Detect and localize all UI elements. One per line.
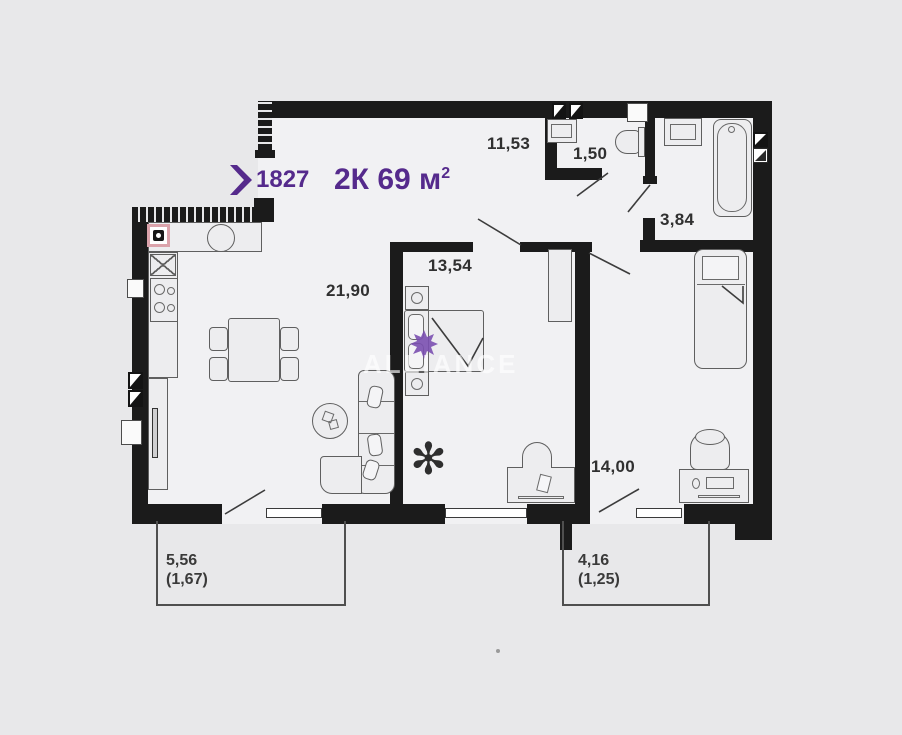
balcony-left-label: 5,56 (1,67) <box>166 551 208 589</box>
wall-rooms-divider <box>575 242 590 504</box>
vent-icon <box>552 103 566 119</box>
watermark: ALLIANCE <box>363 349 518 380</box>
toilet-tank <box>638 127 645 157</box>
room-area-label-wc: 1,50 <box>573 144 607 164</box>
wall-top <box>258 101 772 118</box>
room-area-label-hallway: 11,53 <box>487 134 530 154</box>
wall-right <box>753 101 772 524</box>
wall-left <box>132 207 148 524</box>
wall-wc-bottom <box>545 168 602 180</box>
chevron-right-icon <box>230 165 252 195</box>
kitchen-sink <box>207 224 235 252</box>
floor-plan: ✻ <box>0 0 902 735</box>
window-living <box>266 508 322 518</box>
room-area-label-bathroom: 3,84 <box>660 210 694 230</box>
fridge <box>150 254 176 276</box>
chair <box>209 327 228 351</box>
wardrobe <box>548 249 572 322</box>
wall-entry-hatched <box>258 101 272 150</box>
paper-icon <box>536 474 552 493</box>
wall-bath-cap <box>643 176 657 184</box>
desk <box>507 467 575 503</box>
plan-title-area: 69 м <box>377 163 441 196</box>
plant-icon: ✻ <box>410 438 447 482</box>
wall-bedroom-top-left <box>403 242 473 252</box>
balcony-left-area-reduced: (1,67) <box>166 570 208 589</box>
bath-sink <box>664 118 702 146</box>
window-bedroom <box>445 508 527 518</box>
stove <box>150 278 178 322</box>
balcony-right-area: 4,16 <box>578 551 620 570</box>
wall-kitchen-hatched <box>132 207 254 222</box>
balcony-left-area: 5,56 <box>166 551 208 570</box>
wall-entry-cap-top <box>255 150 275 158</box>
plan-title: 2К 69 м2 <box>334 163 450 197</box>
chair <box>209 357 228 381</box>
wall-stub-bottom-right <box>735 520 772 540</box>
pillow <box>408 314 424 340</box>
desk-chair <box>522 442 552 468</box>
wall-entry-cap-bottom <box>254 198 274 222</box>
vent-icon <box>128 390 143 407</box>
sofa-pillow <box>367 433 384 457</box>
tv <box>152 408 158 458</box>
room-area-label-bedroom: 13,54 <box>428 256 472 276</box>
sofa-corner-section <box>320 456 362 494</box>
electric-panel <box>121 420 142 445</box>
plan-title-rooms: 2К <box>334 163 369 196</box>
plan-title-area-exp: 2 <box>441 165 450 182</box>
keyboard-icon <box>706 477 734 489</box>
dot-marker <box>496 649 500 653</box>
tv-console <box>148 378 168 490</box>
wc-sink <box>547 119 577 143</box>
chair <box>280 357 299 381</box>
chair <box>280 327 299 351</box>
unit-number: 1827 <box>256 166 309 194</box>
nightstand <box>405 286 429 310</box>
vent-shaft-box <box>627 103 648 122</box>
room-area-label-bedroom-2: 14,00 <box>591 457 635 477</box>
armchair <box>690 432 730 470</box>
vent-icon <box>128 372 143 389</box>
vent-icon <box>753 148 768 163</box>
coffee-table <box>312 403 348 439</box>
gas-boiler-marker <box>147 224 170 247</box>
mouse-icon <box>692 478 700 489</box>
dining-table <box>228 318 280 382</box>
balcony-right-label: 4,16 (1,25) <box>578 551 620 589</box>
room-area-label-kitchen-living: 21,90 <box>326 281 370 301</box>
vent-icon <box>753 132 768 147</box>
window-bedroom-2 <box>636 508 682 518</box>
electric-panel <box>127 279 144 298</box>
pillow <box>702 256 739 280</box>
toilet <box>615 130 640 154</box>
wall-wc-bath-divider <box>645 118 655 183</box>
balcony-right-area-reduced: (1,25) <box>578 570 620 589</box>
desk <box>679 469 749 503</box>
single-bed <box>694 249 747 369</box>
vent-icon <box>569 103 583 119</box>
bathtub <box>713 119 752 217</box>
